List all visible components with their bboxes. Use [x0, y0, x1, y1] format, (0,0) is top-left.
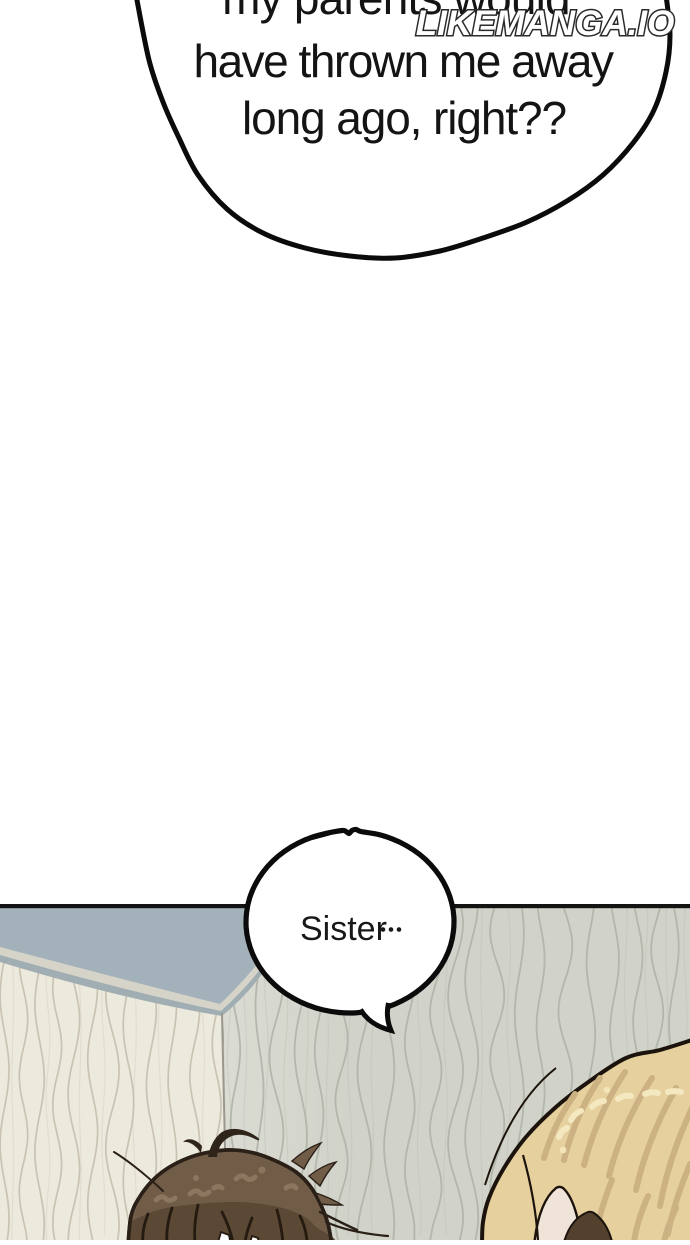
- svg-text:LIKEMANGA.IO: LIKEMANGA.IO: [416, 4, 675, 43]
- svg-text:Sister: Sister: [300, 910, 387, 948]
- svg-text:long ago, right??: long ago, right??: [242, 92, 566, 144]
